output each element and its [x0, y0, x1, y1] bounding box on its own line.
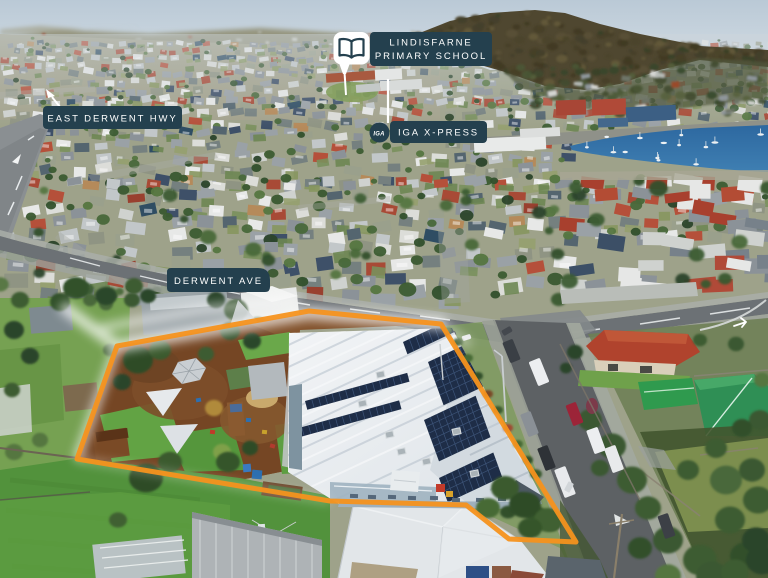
svg-text:EAST DERWENT HWY: EAST DERWENT HWY: [47, 114, 177, 125]
svg-text:IGA X-PRESS: IGA X-PRESS: [398, 128, 479, 139]
svg-text:PRIMARY SCHOOL: PRIMARY SCHOOL: [375, 51, 487, 62]
svg-text:LINDISFARNE: LINDISFARNE: [389, 38, 472, 49]
svg-text:IGA: IGA: [373, 132, 384, 138]
svg-text:DERWENT AVE: DERWENT AVE: [174, 276, 263, 287]
